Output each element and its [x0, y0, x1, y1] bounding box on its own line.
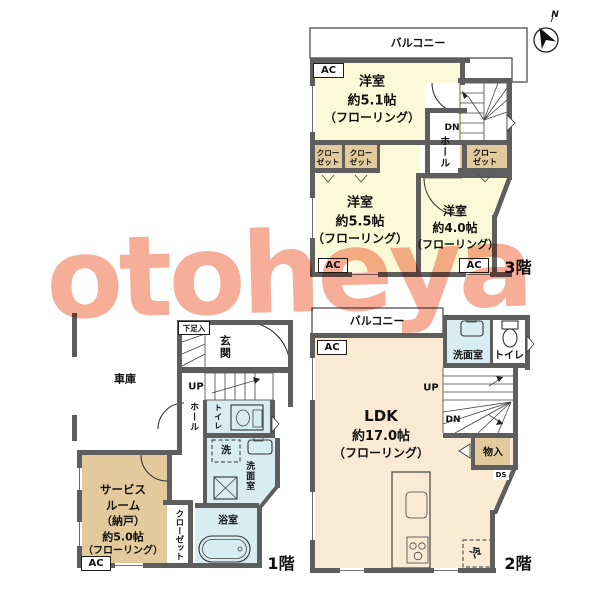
floorplan-page: バルコニー AC 洋室 約5.1帖 （フローリング） DN ホール クローゼット… — [0, 0, 600, 600]
f1-shoebox-label: 下足入 — [178, 321, 210, 335]
f2-floor-label: 2階 — [504, 555, 531, 573]
f2-storage-label: 物入 — [483, 447, 503, 459]
f3-floor-label: 3階 — [504, 259, 531, 277]
f1-shoe-hatch — [182, 334, 205, 366]
f2-ds-label: DS — [496, 471, 507, 479]
f3-stairs — [460, 83, 507, 142]
f3-ac-2: AC — [318, 258, 348, 273]
f3-closet-2: クローゼット — [350, 149, 373, 166]
f2-ac: AC — [317, 340, 347, 355]
f1-stairs — [205, 373, 273, 400]
f3-room51-label: 洋室 約5.1帖 （フローリング） — [324, 71, 420, 126]
f2-balcony-label: バルコニー — [350, 316, 405, 329]
f1-garage-label: 車庫 — [114, 374, 136, 387]
f2-dn-label: DN — [445, 415, 460, 425]
f2-up-label: UP — [423, 382, 438, 394]
f3-room40-label: 洋室 約4.0帖 （フローリング） — [411, 202, 499, 252]
f3-ac-3: AC — [459, 258, 489, 273]
f1-entrance-door-arc — [245, 322, 290, 367]
f1-service-label: サービス ルーム （納戸） 約5.0帖 （フローリング） — [83, 482, 163, 559]
f1-bath-label: 浴室 — [218, 515, 238, 527]
f1-washer-label: 洗 — [221, 445, 231, 457]
f1-hall-label: ホール — [188, 402, 198, 432]
f1-up-label: UP — [188, 381, 203, 393]
f3-balcony-label: バルコニー — [391, 38, 446, 51]
f1-floor-label: 1階 — [267, 555, 294, 573]
f3-closet-3: クローゼット — [473, 149, 498, 168]
f3-hall-label: ホール — [437, 136, 449, 169]
f1-closet-label: クローゼット — [173, 510, 183, 561]
f1-washroom-label: 洗面室 — [244, 461, 254, 491]
f3-dn-label: DN — [444, 123, 459, 133]
f2-washroom-label: 洗面室 — [453, 350, 483, 362]
f1-toilet-label: トイレ — [213, 404, 222, 431]
f1-entrance-label: 玄関 — [218, 335, 231, 359]
f1-ac: AC — [81, 556, 111, 571]
f3-room55-label: 洋室 約5.5帖 （フローリング） — [312, 192, 408, 247]
compass-n-label: N — [551, 10, 559, 20]
f2-ldk-label: LDK 約17.0帖 （フローリング） — [333, 407, 429, 461]
compass-icon — [532, 17, 558, 52]
f2-toilet-label: トイレ — [494, 350, 524, 362]
f3-closet-1: クローゼット — [317, 149, 340, 166]
